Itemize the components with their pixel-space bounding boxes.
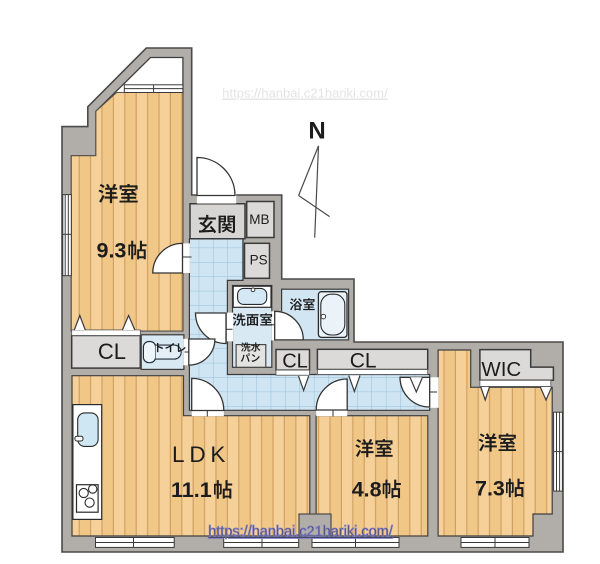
svg-text:4.8: 4.8	[352, 478, 382, 502]
svg-text:CL: CL	[282, 350, 308, 372]
svg-text:CL: CL	[98, 339, 126, 364]
svg-text:7.3: 7.3	[475, 477, 505, 501]
svg-text:PS: PS	[250, 252, 268, 267]
svg-text:N: N	[308, 118, 325, 145]
svg-text:9.3: 9.3	[97, 239, 127, 263]
svg-text:https://hanbai.c21hariki.com/: https://hanbai.c21hariki.com/	[222, 86, 388, 101]
svg-text:CL: CL	[350, 349, 377, 372]
svg-text:LDK: LDK	[172, 442, 230, 467]
svg-text:WIC: WIC	[481, 358, 521, 381]
svg-text:https://hanbai.c21hariki.com/: https://hanbai.c21hariki.com/	[208, 524, 394, 540]
svg-text:MB: MB	[249, 212, 269, 227]
svg-text:11.1: 11.1	[171, 478, 212, 502]
